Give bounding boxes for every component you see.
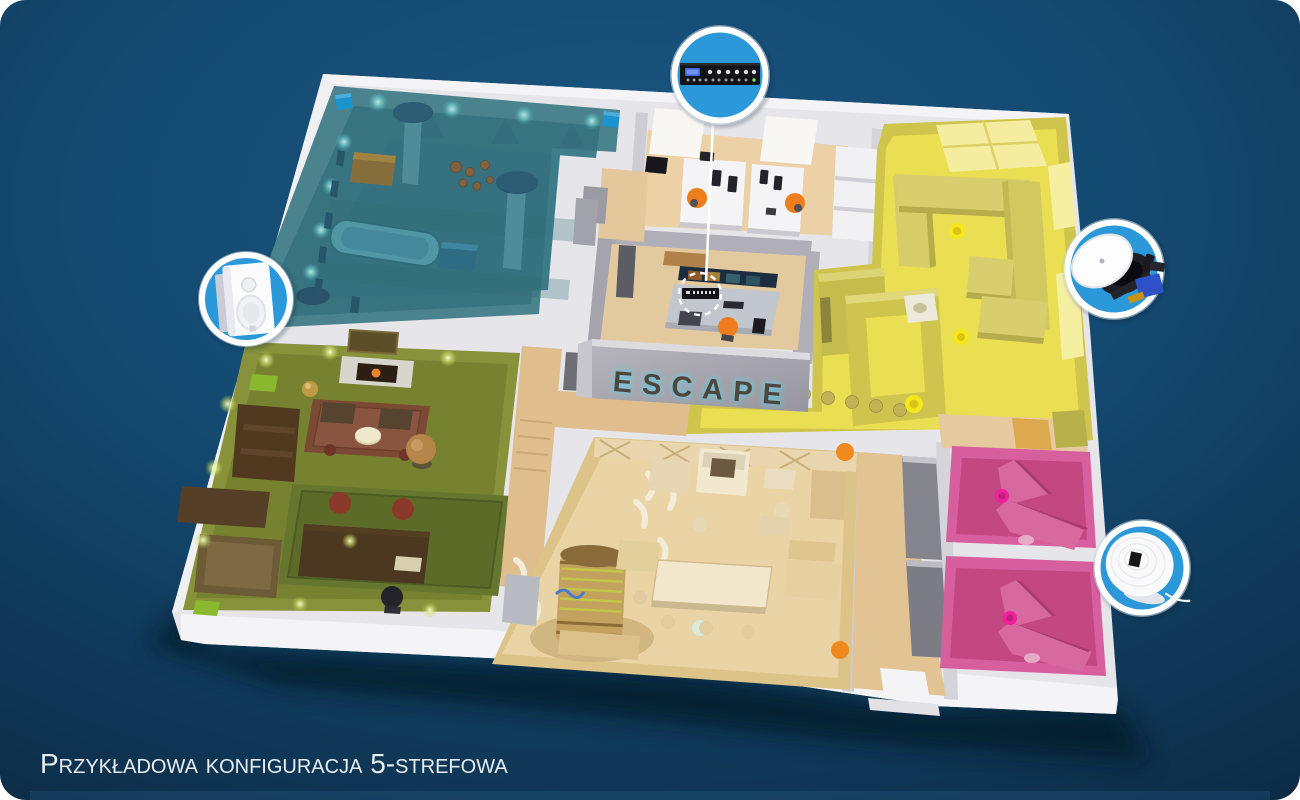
svg-text:Przykładowa konfiguracja 5-str: Przykładowa konfiguracja 5-strefowa [40,748,508,779]
